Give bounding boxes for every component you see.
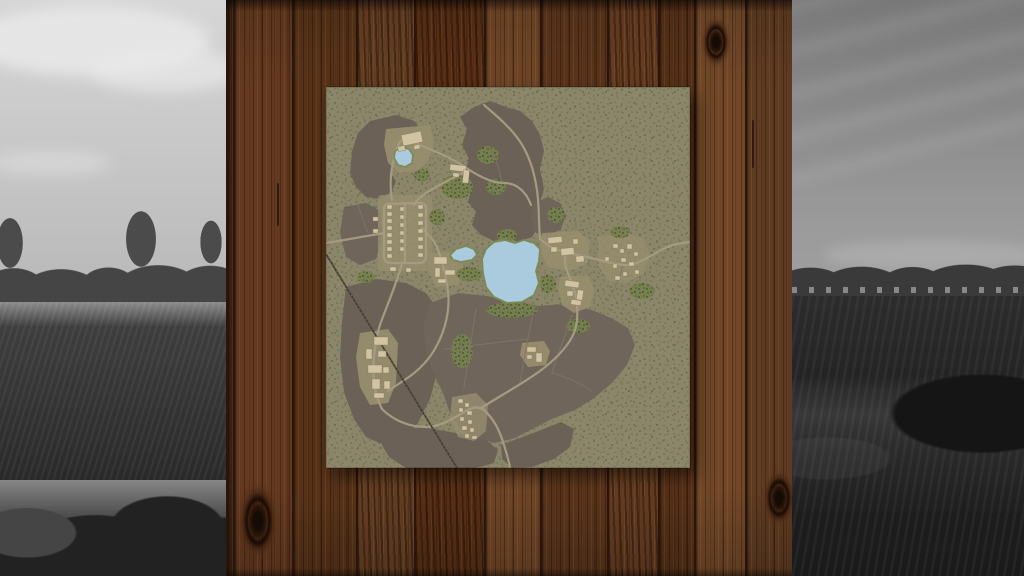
map-building-village-nw	[387, 254, 392, 258]
map-building-farm-w	[434, 257, 447, 264]
map-building-shed-se	[527, 355, 532, 359]
map-building-village-nw	[418, 245, 423, 249]
map-building-village-nw	[373, 229, 378, 233]
map-building-hamlet-e	[620, 249, 624, 253]
map-building-village-d	[462, 426, 467, 430]
map-building-farm-g	[561, 247, 575, 255]
map-building-farm-c	[384, 381, 390, 389]
game-scene	[0, 0, 1024, 576]
map-building-shed-se	[527, 347, 536, 352]
map-building-village-nw	[418, 205, 423, 209]
wood-crack	[752, 120, 754, 168]
map-building-estate-n	[462, 170, 469, 184]
map-building-village-nw	[387, 212, 392, 216]
map-building-farm-c	[366, 349, 372, 359]
map-building-hamlet-e	[634, 252, 638, 256]
map-shrub-cluster	[429, 209, 445, 225]
map-building-village-d	[468, 420, 472, 424]
map-building-farm-c	[374, 393, 384, 398]
map-building-hamlet-e	[635, 270, 639, 274]
map-building-village-nw	[400, 215, 404, 219]
map-building-village-d	[459, 408, 463, 412]
map-building-village-d	[460, 417, 464, 421]
map-building-hamlet-e	[613, 244, 618, 248]
map-shrub-cluster	[357, 271, 375, 283]
wood-knot	[231, 469, 285, 573]
map-building-farm-w	[435, 268, 440, 277]
map-building-farm-g	[573, 239, 578, 244]
map-building-village-nw	[387, 240, 392, 244]
map-building-village-nw	[400, 231, 404, 235]
farm-map	[326, 87, 690, 468]
map-building-hamlet-e	[605, 257, 609, 261]
wood-plank	[694, 0, 745, 576]
map-building-village-d	[458, 399, 463, 403]
map-building-village-nw	[418, 253, 423, 257]
wood-knot	[696, 8, 736, 76]
map-building-shed-se	[536, 353, 542, 362]
map-building-village-nw	[387, 247, 392, 251]
map-shrub-cluster	[486, 302, 538, 318]
map-building-village-nw	[418, 221, 423, 225]
map-building-village-nw	[387, 219, 392, 223]
tall-tree	[120, 200, 162, 278]
wood-crack	[277, 183, 279, 226]
distant-buildings	[792, 287, 1024, 293]
map-building-hamlet-e	[629, 262, 634, 266]
map-building-village-nw	[400, 207, 404, 211]
map-building-village-d	[465, 434, 469, 438]
map-building-village-nw	[400, 247, 404, 251]
map-building-farm-g	[548, 236, 563, 243]
left-crop-field	[0, 302, 226, 480]
map-shrub-cluster	[497, 229, 517, 241]
map-building-farm-c	[372, 379, 380, 389]
map-building-village-nw	[406, 268, 411, 272]
map-building-hamlet-e	[621, 258, 626, 262]
map-building-village-d	[472, 436, 477, 439]
right-landscape	[792, 0, 1024, 576]
map-building-village-nw	[373, 217, 378, 221]
right-crop-field	[792, 296, 1024, 576]
map-building-farm-w	[445, 270, 455, 275]
map-building-village-d	[470, 428, 474, 432]
map-shrub-cluster	[456, 267, 482, 281]
map-shrub-cluster	[547, 207, 565, 223]
map-building-farm-g	[551, 247, 557, 252]
map-building-village-nw	[387, 226, 392, 230]
map-building-farm-e	[567, 291, 573, 296]
left-landscape	[0, 0, 226, 576]
wood-plank	[226, 0, 233, 576]
map-building-farm-g	[576, 256, 585, 263]
map-building-village-nw	[390, 267, 396, 271]
map-building-village-nw	[387, 205, 392, 209]
map-building-hamlet-e	[627, 244, 632, 249]
map-building-farm-c	[383, 367, 389, 373]
map-building-hamlet-e	[613, 264, 617, 268]
left-bushes	[0, 468, 226, 576]
map-poster[interactable]	[326, 87, 690, 468]
map-building-village-nw	[400, 223, 404, 227]
map-building-village-d	[467, 411, 472, 415]
map-shrub-cluster	[610, 226, 630, 238]
map-building-village-nw	[418, 213, 423, 217]
map-building-village-d	[465, 403, 469, 407]
map-building-farm-c	[378, 351, 386, 357]
map-building-hamlet-e	[615, 276, 620, 280]
map-shrub-cluster	[414, 169, 430, 181]
map-building-estate-n	[453, 173, 459, 178]
map-building-village-nw	[418, 229, 423, 233]
map-building-farm-e	[576, 290, 583, 301]
tall-tree	[0, 208, 28, 278]
tall-tree	[196, 212, 226, 272]
map-shrub-cluster	[540, 275, 556, 293]
map-building-farm-c	[368, 365, 382, 373]
map-building-village-nw	[400, 239, 404, 243]
map-shrub-cluster	[629, 283, 655, 299]
map-building-farm-c	[374, 337, 388, 345]
map-building-farm-w	[438, 279, 446, 283]
map-building-village-nw	[418, 237, 423, 241]
map-lake	[482, 240, 540, 303]
map-building-village-nw	[387, 233, 392, 237]
map-building-hamlet-e	[623, 272, 627, 276]
